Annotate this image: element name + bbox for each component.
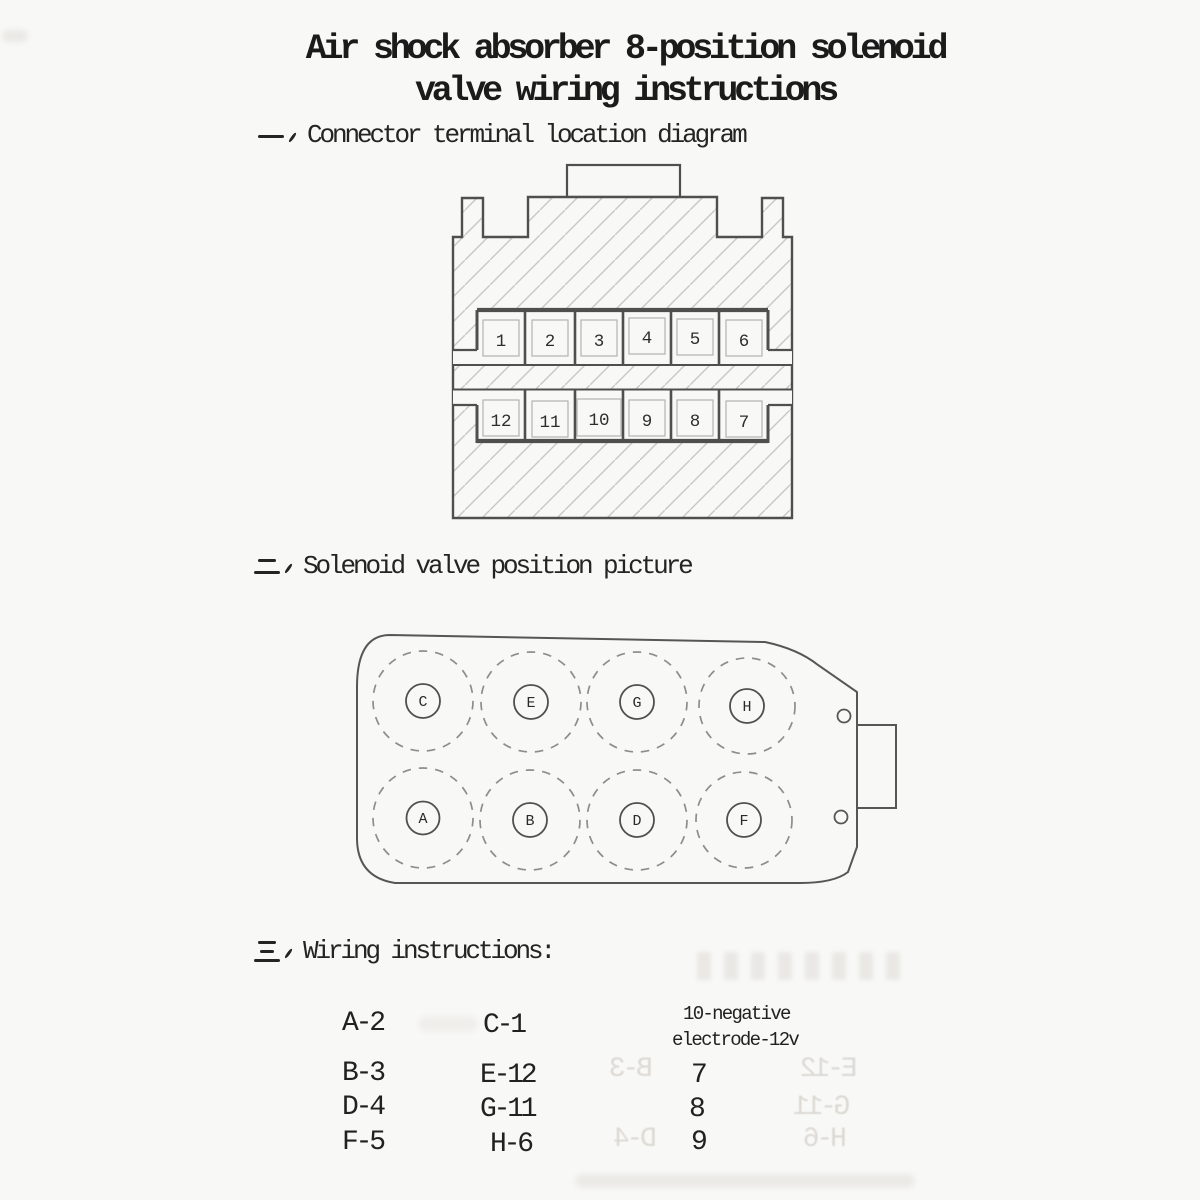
terminal-number: 12: [490, 412, 511, 432]
bleedthrough-text: E-12: [803, 1054, 857, 1085]
cjk-comma-icon: [283, 945, 295, 963]
section-2-label: Solenoid valve position picture: [303, 551, 691, 581]
valve-diagram-svg: C E G H A: [340, 615, 915, 900]
cjk-numeral-two: [254, 553, 280, 579]
terminal-number: 10: [588, 411, 609, 431]
scan-smudge: [2, 30, 28, 42]
section-heading-connector: Connector terminal location diagram: [258, 120, 745, 150]
wiring-terminal: 7: [691, 1060, 708, 1091]
valve-letter: F: [739, 813, 748, 830]
section-heading-valve: Solenoid valve position picture: [254, 551, 691, 581]
wiring-pair: D-4: [342, 1092, 383, 1123]
terminal-number: 4: [642, 329, 653, 349]
valve-letter: G: [632, 695, 641, 712]
wiring-pair: F-5: [342, 1127, 383, 1158]
valve-letter: D: [632, 813, 641, 830]
valve-letter: H: [742, 699, 751, 716]
wiring-negative-line1: 10-negative: [683, 1003, 790, 1025]
terminal-number: 3: [594, 332, 605, 352]
terminal-number: 6: [739, 332, 750, 352]
title-line-2: valve wiring instructions: [25, 70, 1200, 112]
cjk-comma-icon: [287, 129, 299, 147]
scan-smudge: [575, 1174, 915, 1188]
terminal-number: 1: [496, 332, 507, 352]
wiring-pair: G-11: [480, 1094, 534, 1125]
scan-smudge: [418, 1016, 478, 1032]
terminal-number: 2: [545, 332, 556, 352]
document-title: Air shock absorber 8-position solenoid v…: [25, 28, 1200, 112]
connector-latch-tab: [567, 165, 680, 197]
valve-side-tab: [857, 725, 896, 808]
terminal-number: 5: [690, 330, 701, 350]
valve-letter: C: [418, 694, 427, 711]
wiring-pair: E-12: [480, 1060, 534, 1091]
terminal-number: 8: [690, 412, 701, 432]
title-line-1: Air shock absorber 8-position solenoid: [25, 28, 1200, 70]
cjk-comma-icon: [283, 560, 295, 578]
scan-smudge: [697, 952, 905, 980]
wiring-pair: B-3: [342, 1058, 383, 1089]
valve-letter: E: [526, 695, 535, 712]
bleedthrough-text: G-11: [796, 1092, 850, 1123]
terminal-number: 7: [739, 413, 750, 433]
valve-letter: A: [418, 811, 427, 828]
wiring-terminal: 8: [689, 1094, 706, 1125]
bleedthrough-text: B-3: [612, 1054, 653, 1085]
valve-letter: B: [525, 813, 534, 830]
bleedthrough-text: H-6: [806, 1124, 847, 1155]
connector-diagram-svg: 1 2 3 4 5 6: [440, 160, 806, 532]
section-heading-wiring: Wiring instructions:: [254, 936, 553, 966]
document-page: Air shock absorber 8-position solenoid v…: [0, 0, 1200, 1200]
wiring-pair: C-1: [483, 1010, 524, 1041]
wiring-terminal: 9: [691, 1127, 708, 1158]
bleedthrough-text: D-4: [616, 1124, 657, 1155]
section-3-label: Wiring instructions:: [303, 936, 553, 966]
terminal-number: 11: [539, 413, 560, 433]
cjk-numeral-one: [258, 122, 284, 148]
cjk-numeral-three: [254, 938, 280, 964]
terminal-number: 9: [642, 412, 653, 432]
wiring-pair: A-2: [342, 1008, 383, 1039]
wiring-pair: H-6: [490, 1129, 531, 1160]
section-1-label: Connector terminal location diagram: [307, 120, 745, 150]
wiring-negative-line2: electrode-12v: [672, 1029, 798, 1051]
